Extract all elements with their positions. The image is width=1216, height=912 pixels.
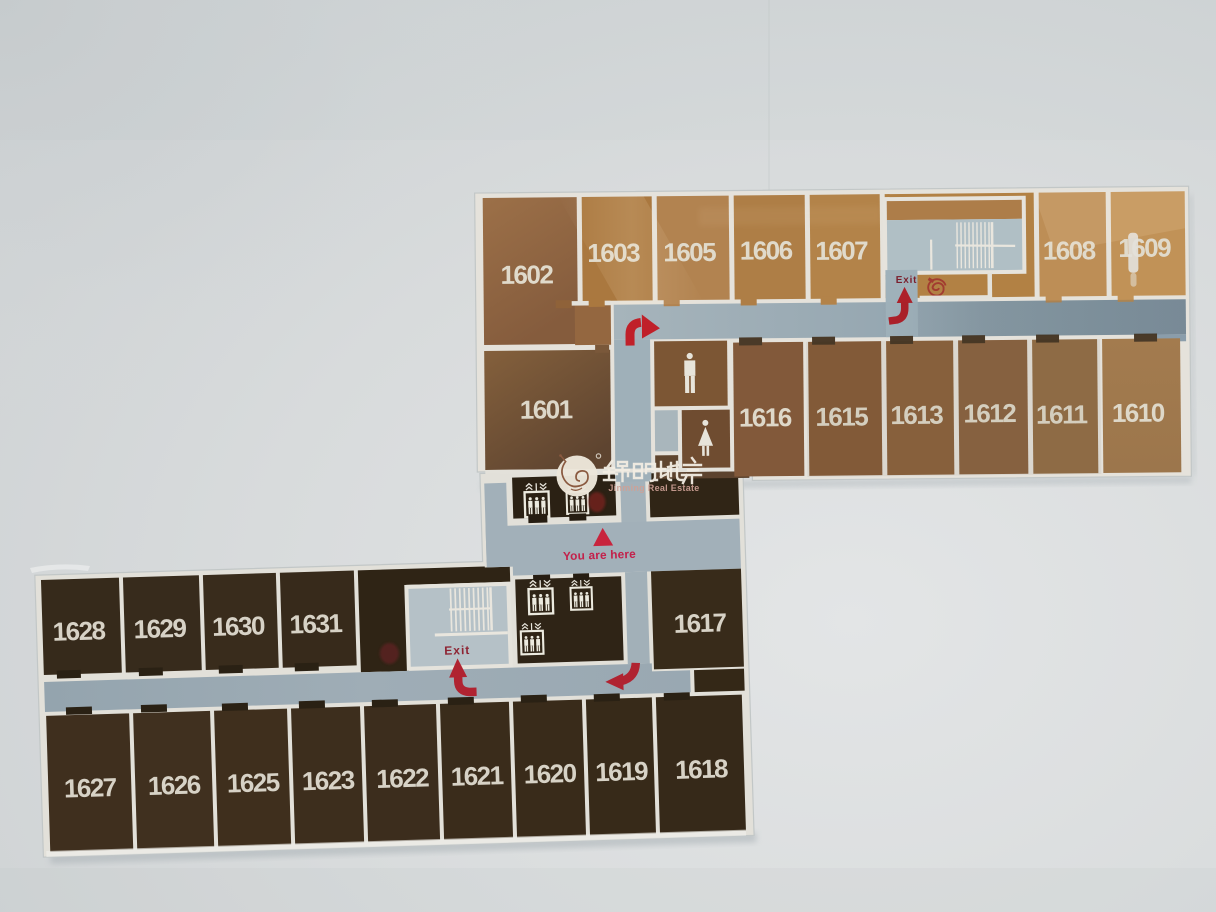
svg-text:1630: 1630 xyxy=(212,610,266,642)
svg-text:1621: 1621 xyxy=(450,760,504,792)
svg-text:1622: 1622 xyxy=(376,762,430,794)
svg-text:1623: 1623 xyxy=(301,765,355,797)
svg-text:1626: 1626 xyxy=(147,769,201,801)
svg-text:Exit: Exit xyxy=(896,275,918,286)
svg-text:1620: 1620 xyxy=(523,758,577,790)
svg-text:1628: 1628 xyxy=(52,615,106,647)
svg-text:1602: 1602 xyxy=(500,259,553,290)
svg-text:1619: 1619 xyxy=(595,756,649,788)
svg-text:Exit: Exit xyxy=(444,643,470,658)
svg-text:1625: 1625 xyxy=(226,767,280,799)
svg-text:1606: 1606 xyxy=(740,235,793,266)
svg-text:Jinming Real Estate: Jinming Real Estate xyxy=(608,483,699,493)
svg-text:1617: 1617 xyxy=(673,607,727,639)
svg-text:1629: 1629 xyxy=(133,613,187,645)
svg-text:1631: 1631 xyxy=(289,608,343,640)
svg-text:1607: 1607 xyxy=(815,235,868,266)
svg-text:1618: 1618 xyxy=(675,753,729,785)
svg-text:1627: 1627 xyxy=(63,772,117,804)
svg-text:You are here: You are here xyxy=(563,547,637,563)
svg-text:1616: 1616 xyxy=(739,402,792,433)
svg-text:1601: 1601 xyxy=(520,394,573,425)
svg-text:1610: 1610 xyxy=(1112,398,1165,429)
